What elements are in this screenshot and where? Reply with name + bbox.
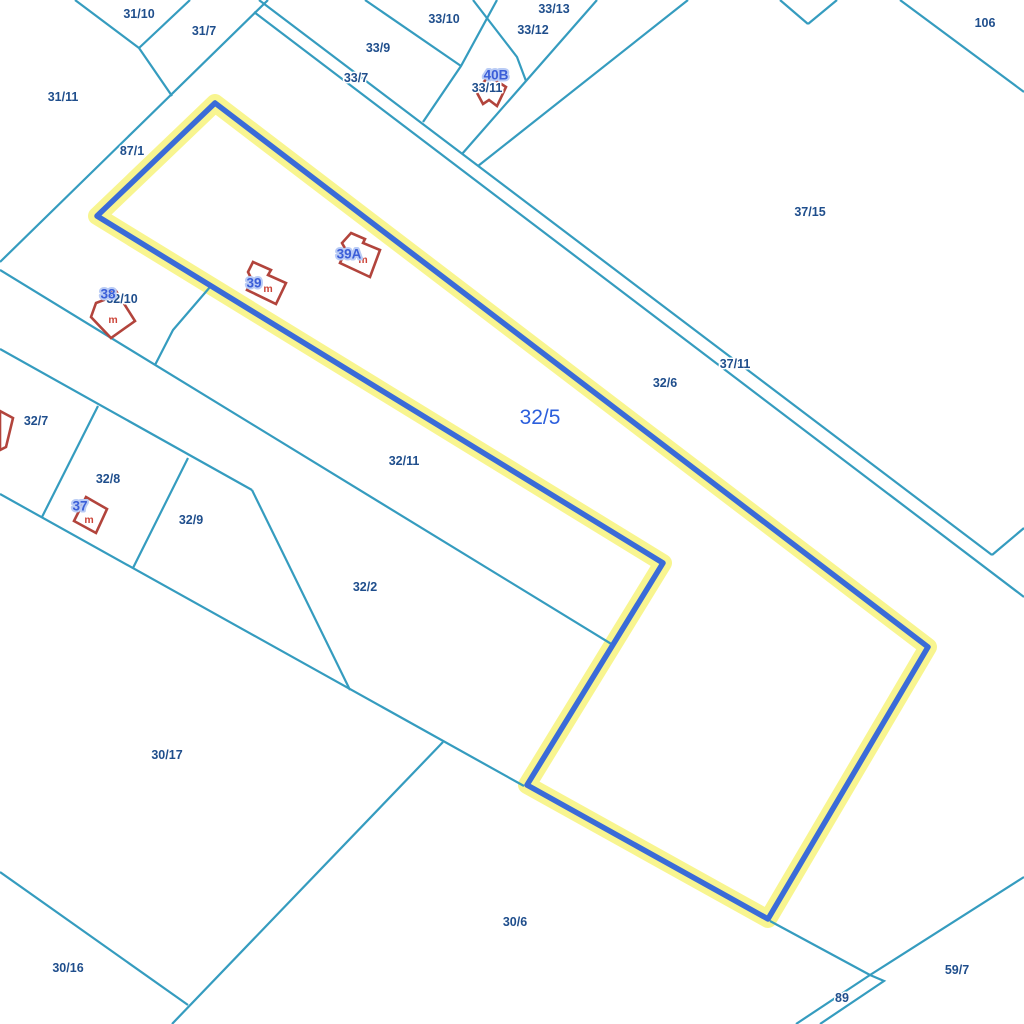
parcel-label-87-1: 87/1 (120, 144, 144, 158)
parcel-label-33-12: 33/12 (517, 23, 548, 37)
house-number-label-38: 38 (100, 287, 116, 302)
parcel-boundary-line (478, 0, 688, 166)
parcel-label-31-7: 31/7 (192, 24, 216, 38)
parcel-boundary-line (139, 48, 172, 96)
parcel-label-32-11: 32/11 (389, 454, 420, 468)
parcel-label-32-8: 32/8 (96, 472, 120, 486)
parcel-label-32-7: 32/7 (24, 414, 48, 428)
parcel-label-30-6: 30/6 (503, 915, 527, 929)
parcel-label-33-13: 33/13 (538, 2, 569, 16)
parcel-label-106: 106 (975, 16, 996, 30)
parcel-label-30-17: 30/17 (151, 748, 182, 762)
parcel-boundary-line (770, 921, 870, 975)
parcel-label-32-9: 32/9 (179, 513, 203, 527)
building-edge-fragment (0, 411, 13, 450)
parcel-boundary-line (992, 528, 1024, 555)
parcel-label-33-9: 33/9 (366, 41, 390, 55)
parcel-boundary-line (796, 877, 1024, 1024)
parcel-boundary-line (900, 0, 1024, 92)
parcel-label-32-2: 32/2 (353, 580, 377, 594)
parcel-boundary-line (365, 0, 461, 66)
parcel-boundary-line (780, 0, 808, 24)
parcel-label-37-15: 37/15 (794, 205, 825, 219)
parcel-boundary-line (254, 12, 1024, 597)
parcel-boundary-line (172, 742, 443, 1024)
parcel-label-89: 89 (835, 991, 849, 1005)
selected-parcel-outline[interactable] (97, 103, 928, 919)
parcel-label-33-7: 33/7 (344, 71, 368, 85)
parcel-label-33-11: 33/11 (472, 81, 503, 95)
parcel-label-59-7: 59/7 (945, 963, 969, 977)
parcel-boundary-line (0, 872, 188, 1005)
parcel-boundary-line (0, 494, 524, 786)
parcel-label-31-11: 31/11 (48, 90, 79, 104)
house-number-label-40B: 40B (484, 68, 509, 83)
building-material-label: m (263, 283, 272, 295)
parcel-boundary-line (155, 287, 210, 365)
parcel-boundary-line (252, 490, 350, 690)
parcel-label-37-11: 37/11 (720, 357, 751, 371)
parcel-label-32-6: 32/6 (653, 376, 677, 390)
selected-parcel-label: 32/5 (520, 406, 561, 429)
house-number-label-39A: 39A (337, 247, 362, 262)
selected-parcel-halo (97, 103, 928, 919)
house-number-label-37: 37 (72, 499, 87, 514)
cadastral-map-canvas[interactable]: 31/1031/733/1033/1333/1233/933/733/11106… (0, 0, 1024, 1024)
parcel-boundary-line (808, 0, 837, 24)
building-material-label: m (108, 314, 117, 326)
parcel-boundary-line (820, 975, 884, 1024)
cadastral-map-viewport[interactable]: 31/1031/733/1033/1333/1233/933/733/11106… (0, 0, 1024, 1024)
parcel-label-33-10: 33/10 (428, 12, 459, 26)
parcel-label-31-10: 31/10 (123, 7, 154, 21)
parcel-label-30-16: 30/16 (52, 961, 83, 975)
building-material-label: m (84, 514, 93, 526)
house-number-label-39: 39 (246, 276, 261, 291)
parcel-boundary-line (0, 0, 268, 262)
